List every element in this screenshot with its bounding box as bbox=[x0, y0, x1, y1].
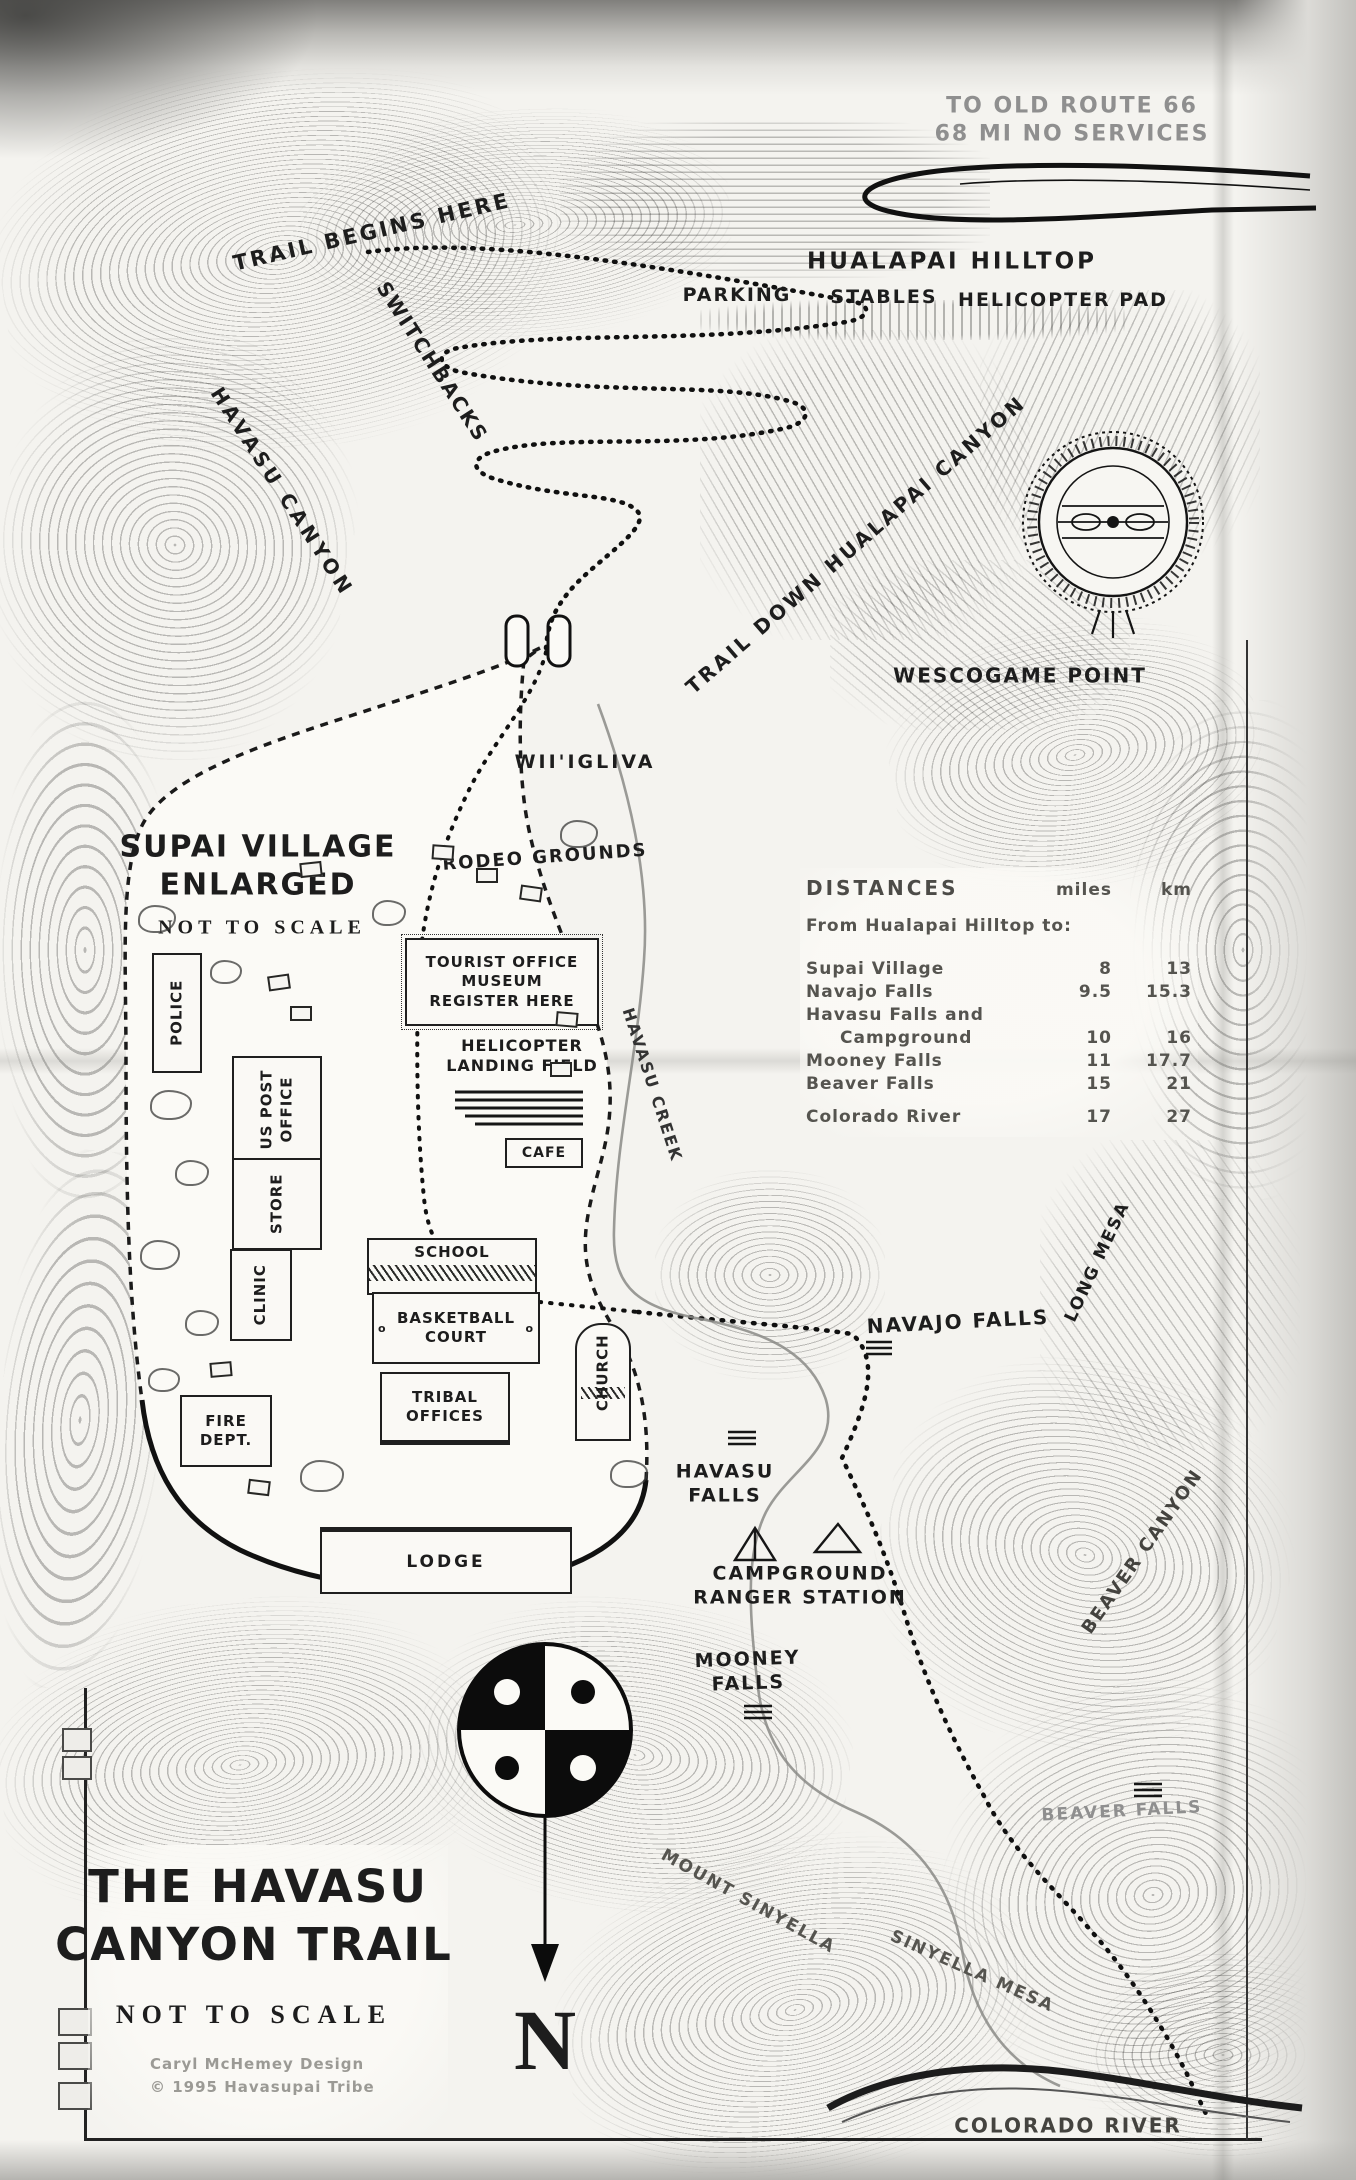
bush-icon bbox=[140, 1240, 180, 1270]
building-store: STORE bbox=[232, 1158, 322, 1250]
bush-icon bbox=[300, 1460, 344, 1492]
label-havasu-falls: HAVASU FALLS bbox=[676, 1460, 775, 1508]
label-wescogame-point: WESCOGAME POINT bbox=[893, 664, 1147, 689]
map-title-line1: THE HAVASU bbox=[88, 1859, 428, 1915]
distance-row: Havasu Falls andCampground 1016 bbox=[806, 1004, 1192, 1050]
hoop-icon: o bbox=[525, 1322, 534, 1336]
margin-box bbox=[58, 2082, 92, 2110]
building-label: SCHOOL bbox=[414, 1243, 489, 1263]
distances-title: DISTANCES bbox=[806, 876, 959, 900]
building-fire-dept: FIREDEPT. bbox=[180, 1395, 272, 1467]
school-roof-hatch bbox=[369, 1265, 535, 1281]
hut-icon bbox=[247, 1479, 271, 1497]
title-block: THE HAVASU CANYON TRAIL NOT TO SCALE Car… bbox=[88, 1845, 448, 2135]
margin-box bbox=[58, 2042, 92, 2070]
building-clinic: CLINIC bbox=[230, 1249, 292, 1341]
village-gate bbox=[548, 616, 570, 666]
building-cafe: CAFE bbox=[505, 1138, 583, 1168]
label-mooney-falls: MOONEY FALLS bbox=[694, 1646, 801, 1697]
hut-icon bbox=[555, 1011, 578, 1028]
map-scale-note: NOT TO SCALE bbox=[116, 1999, 392, 2032]
village-gate bbox=[506, 616, 528, 666]
margin-box bbox=[62, 1728, 92, 1752]
margin-box bbox=[62, 1756, 92, 1780]
building-lodge: LODGE bbox=[320, 1527, 572, 1594]
label-parking: PARKING bbox=[683, 284, 792, 308]
label-stables: STABLES bbox=[830, 286, 937, 310]
label-wiigliva: WII'IGLIVA bbox=[515, 751, 656, 775]
distances-subtitle: From Hualapai Hilltop to: bbox=[806, 916, 1192, 936]
distances-col-miles: miles bbox=[1026, 880, 1112, 900]
building-label: FIREDEPT. bbox=[200, 1412, 252, 1451]
bush-icon bbox=[185, 1310, 219, 1336]
hut-icon bbox=[290, 1006, 312, 1021]
distance-row: Beaver Falls 1521 bbox=[806, 1073, 1192, 1096]
bush-icon bbox=[210, 960, 242, 984]
distance-row: Colorado River 1727 bbox=[806, 1106, 1192, 1129]
compass-north-label: N bbox=[514, 1990, 576, 2090]
hut-icon bbox=[432, 844, 455, 860]
building-label: US POSTOFFICE bbox=[258, 1069, 297, 1149]
building-school: SCHOOL bbox=[367, 1238, 537, 1295]
building-label: POLICE bbox=[167, 980, 187, 1046]
label-helicopter-landing-field: HELICOPTERLANDING FIELD bbox=[446, 1036, 598, 1076]
label-campground-ranger-station: CAMPGROUND RANGER STATION bbox=[693, 1562, 907, 1610]
bush-icon bbox=[610, 1460, 648, 1488]
map-page: TO OLD ROUTE 66 68 MI NO SERVICES TRAIL … bbox=[0, 0, 1356, 2180]
label-colorado-river: COLORADO RIVER bbox=[954, 2114, 1182, 2139]
hut-icon bbox=[209, 1361, 232, 1378]
bush-icon bbox=[175, 1160, 209, 1186]
building-church: CHURCH bbox=[575, 1323, 631, 1441]
distance-row: Mooney Falls 1117.7 bbox=[806, 1050, 1192, 1073]
building-label: CHURCH bbox=[593, 1335, 613, 1412]
distance-row: Navajo Falls 9.515.3 bbox=[806, 981, 1192, 1004]
map-credit: Caryl McHemey Design © 1995 Havasupai Tr… bbox=[150, 2053, 375, 2098]
margin-box bbox=[58, 2008, 92, 2036]
distances-header: DISTANCES miles km bbox=[806, 876, 1192, 900]
building-label: CLINIC bbox=[251, 1264, 271, 1325]
map-title-line2: CANYON TRAIL bbox=[55, 1917, 453, 1973]
hut-icon bbox=[519, 885, 543, 903]
building-label: STORE bbox=[267, 1174, 287, 1235]
label-village-not-to-scale: NOT TO SCALE bbox=[158, 916, 366, 941]
bush-icon bbox=[372, 900, 406, 926]
building-basketball-court: o o BASKETBALLCOURT bbox=[372, 1292, 540, 1364]
building-label: CAFE bbox=[522, 1144, 566, 1162]
hoop-icon: o bbox=[378, 1322, 387, 1336]
distances-table: DISTANCES miles km From Hualapai Hilltop… bbox=[800, 868, 1198, 1137]
building-police: POLICE bbox=[152, 953, 202, 1073]
building-label: LODGE bbox=[406, 1551, 485, 1573]
bush-icon bbox=[560, 820, 598, 848]
bush-icon bbox=[150, 1090, 192, 1120]
distance-row: Supai Village 813 bbox=[806, 958, 1192, 981]
trail-to-falls-dotted bbox=[638, 1312, 1208, 2118]
bush-icon bbox=[138, 905, 176, 933]
label-helicopter-pad: HELICOPTER PAD bbox=[958, 289, 1168, 313]
bush-icon bbox=[148, 1368, 180, 1392]
building-tribal-offices: TRIBALOFFICES bbox=[380, 1372, 510, 1445]
label-route-66: TO OLD ROUTE 66 68 MI NO SERVICES bbox=[935, 93, 1210, 148]
hut-icon bbox=[299, 861, 322, 878]
hut-icon bbox=[476, 868, 498, 883]
building-label: TRIBALOFFICES bbox=[406, 1388, 484, 1427]
hut-icon bbox=[550, 1062, 572, 1077]
hut-icon bbox=[267, 974, 291, 992]
label-hualapai-hilltop: HUALAPAI HILLTOP bbox=[807, 248, 1097, 277]
compass-icon bbox=[459, 1644, 631, 1982]
tribal-seal-icon bbox=[1023, 432, 1203, 638]
road-to-route-66 bbox=[865, 165, 1316, 220]
distances-col-km: km bbox=[1112, 880, 1192, 900]
building-label: TOURIST OFFICEMUSEUMREGISTER HERE bbox=[426, 953, 579, 1012]
label-supai-village-enlarged: SUPAI VILLAGE ENLARGED bbox=[120, 829, 397, 904]
building-us-post-office: US POSTOFFICE bbox=[232, 1056, 322, 1162]
building-label: BASKETBALLCOURT bbox=[397, 1309, 515, 1348]
